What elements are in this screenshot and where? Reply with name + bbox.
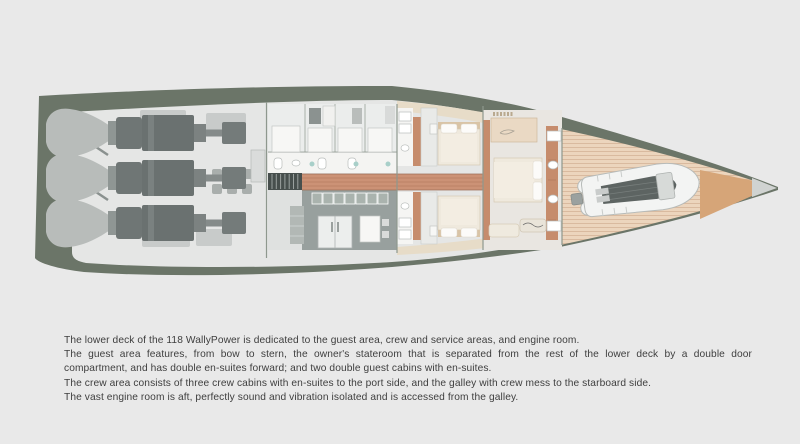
sink [547, 221, 561, 231]
sink [547, 131, 561, 141]
fridge [318, 216, 352, 248]
owner-stateroom [483, 110, 562, 250]
pillow [461, 228, 477, 237]
sofa [489, 224, 519, 237]
locker [385, 106, 395, 124]
crew-mess-table [360, 216, 380, 242]
wood-strip [483, 120, 490, 240]
switchboard [251, 150, 265, 182]
bedside-table [430, 124, 437, 134]
guest-cabin-starboard [397, 192, 480, 244]
tender-console [656, 172, 675, 200]
engine-room [46, 109, 265, 248]
crew-bunk [368, 128, 392, 152]
caption: The lower deck of the 118 WallyPower is … [64, 334, 752, 405]
locker [323, 106, 335, 126]
caption-line-1: The lower deck of the 118 WallyPower is … [64, 334, 752, 348]
caption-line-5: The vast engine room is aft, perfectly s… [64, 391, 752, 405]
locker [309, 108, 321, 124]
caption-line-2: The guest area features, from bow to ste… [64, 348, 752, 362]
chair [382, 219, 389, 226]
pantry-shelves [290, 206, 304, 244]
galley-cabinets [312, 193, 388, 204]
locker [352, 108, 362, 124]
crew-ensuites [268, 153, 397, 173]
sink [386, 162, 391, 167]
toilet [318, 158, 326, 169]
sink [354, 162, 359, 167]
dresser [491, 118, 537, 142]
sink [399, 112, 411, 121]
pillow [533, 182, 542, 200]
crew-bunk [308, 128, 332, 152]
stairway [268, 173, 302, 190]
owner-bed [494, 158, 542, 202]
galley [268, 190, 397, 250]
toilet [274, 158, 282, 169]
toilet [548, 195, 558, 203]
outboard-engine [571, 193, 583, 205]
shower [399, 124, 411, 133]
toilet [401, 145, 409, 151]
pillow [461, 124, 477, 133]
pillow [441, 228, 457, 237]
caption-line-3: compartment, and has double en-suites fo… [64, 362, 752, 376]
crew-bunk [338, 128, 362, 152]
chair [382, 231, 389, 238]
crew-bunk [272, 126, 300, 152]
pillow [533, 161, 542, 179]
wood-strip [413, 192, 421, 240]
caption-line-4: The crew area consists of three crew cab… [64, 377, 752, 391]
sink [292, 160, 300, 166]
bedside-table [430, 226, 437, 236]
gearbox [116, 117, 142, 149]
toilet [548, 161, 558, 169]
wardrobe [421, 108, 437, 166]
pillow [441, 124, 457, 133]
lower-deck-plan [0, 0, 800, 320]
sink [399, 230, 411, 239]
toilet [401, 203, 409, 209]
sink [310, 162, 315, 167]
page: { "caption": { "lines": [ "The lower dec… [0, 0, 800, 444]
wood-strip [413, 117, 421, 166]
shower [399, 218, 411, 227]
